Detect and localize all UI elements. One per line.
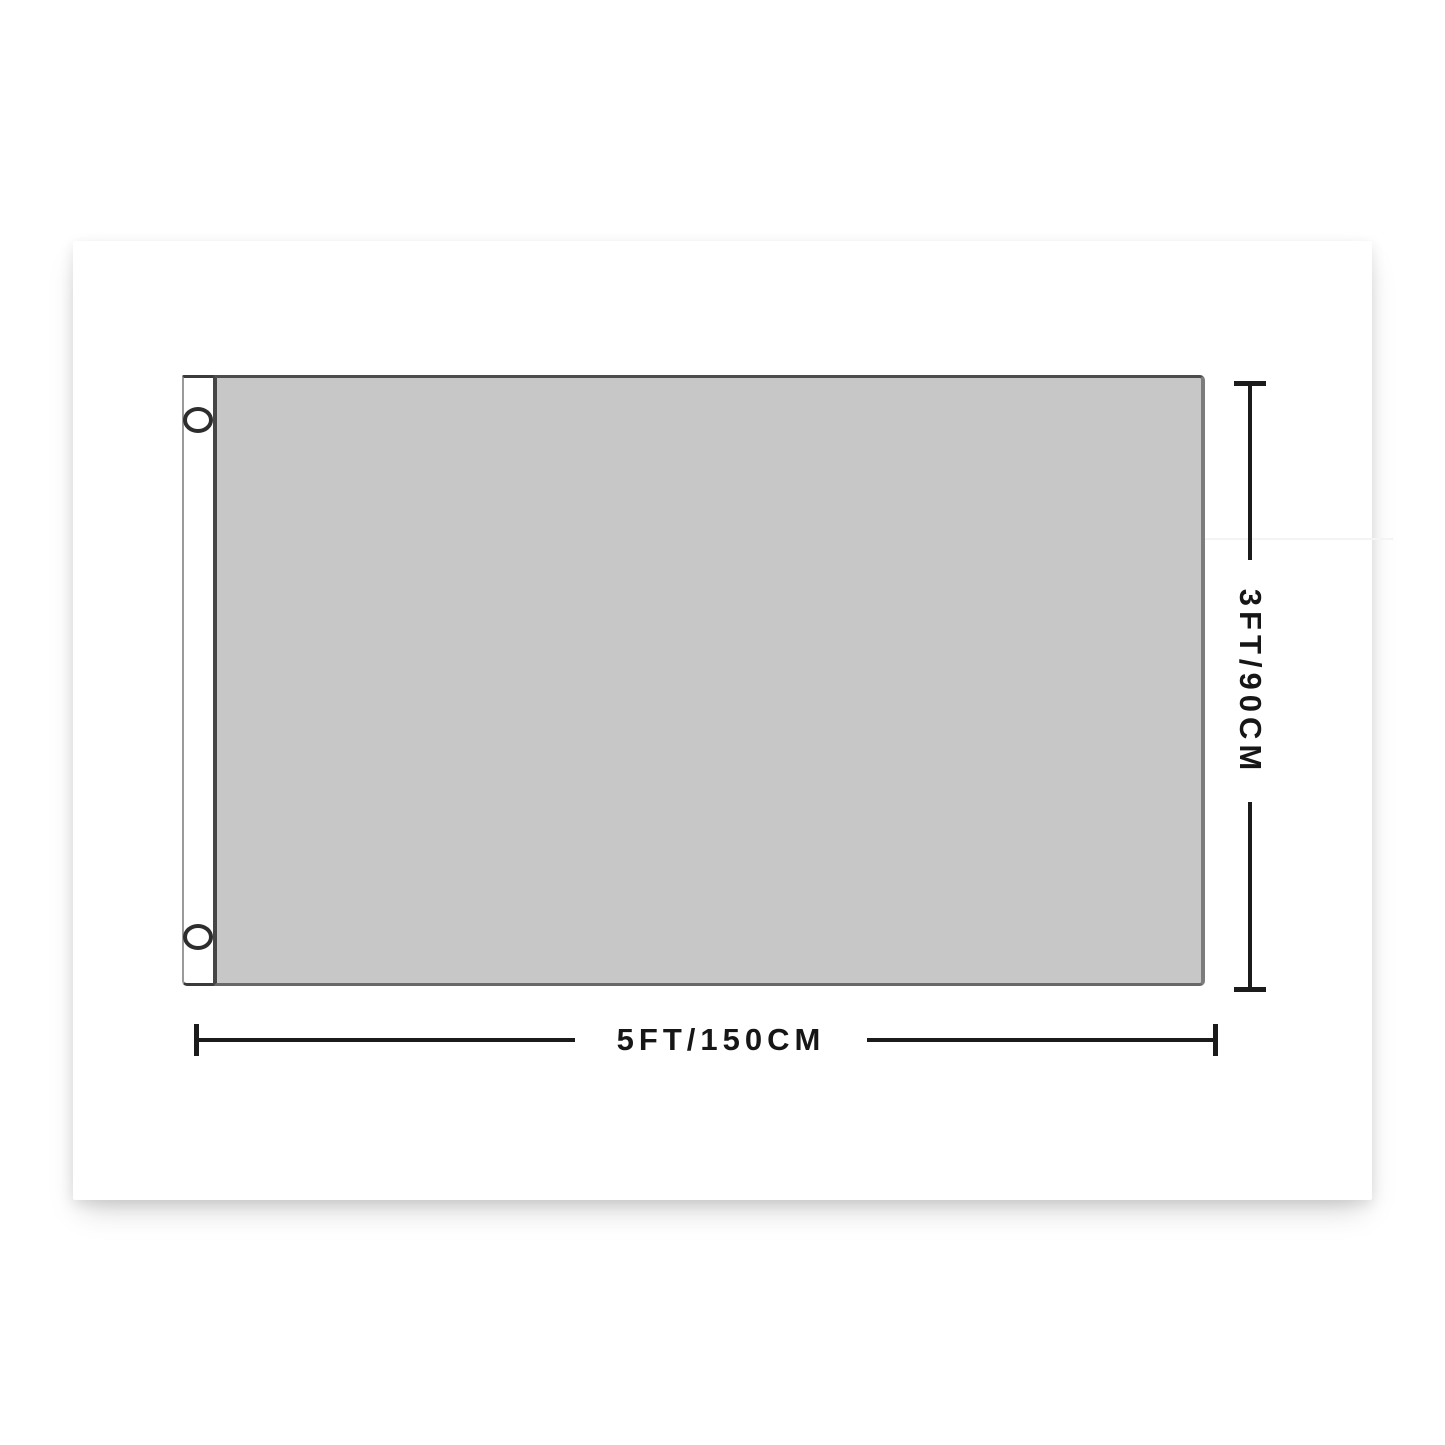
grommet-icon [183,924,213,950]
width-dimension-right-tick [1213,1024,1218,1056]
flag-pole-sleeve [182,375,215,986]
width-dimension-line [867,1038,1213,1042]
width-dimension-label: 5FT/150CM [575,1020,867,1060]
height-dimension-label: 3FT/90CM [1230,562,1270,802]
height-dimension-line [1248,802,1252,987]
flag-body [213,375,1205,986]
width-dimension-line [199,1038,575,1042]
height-dimension-bottom-tick [1234,987,1266,992]
height-dimension-line [1248,386,1252,560]
grommet-icon [183,407,213,433]
page-background: 5FT/150CM 3FT/90CM [0,0,1445,1445]
